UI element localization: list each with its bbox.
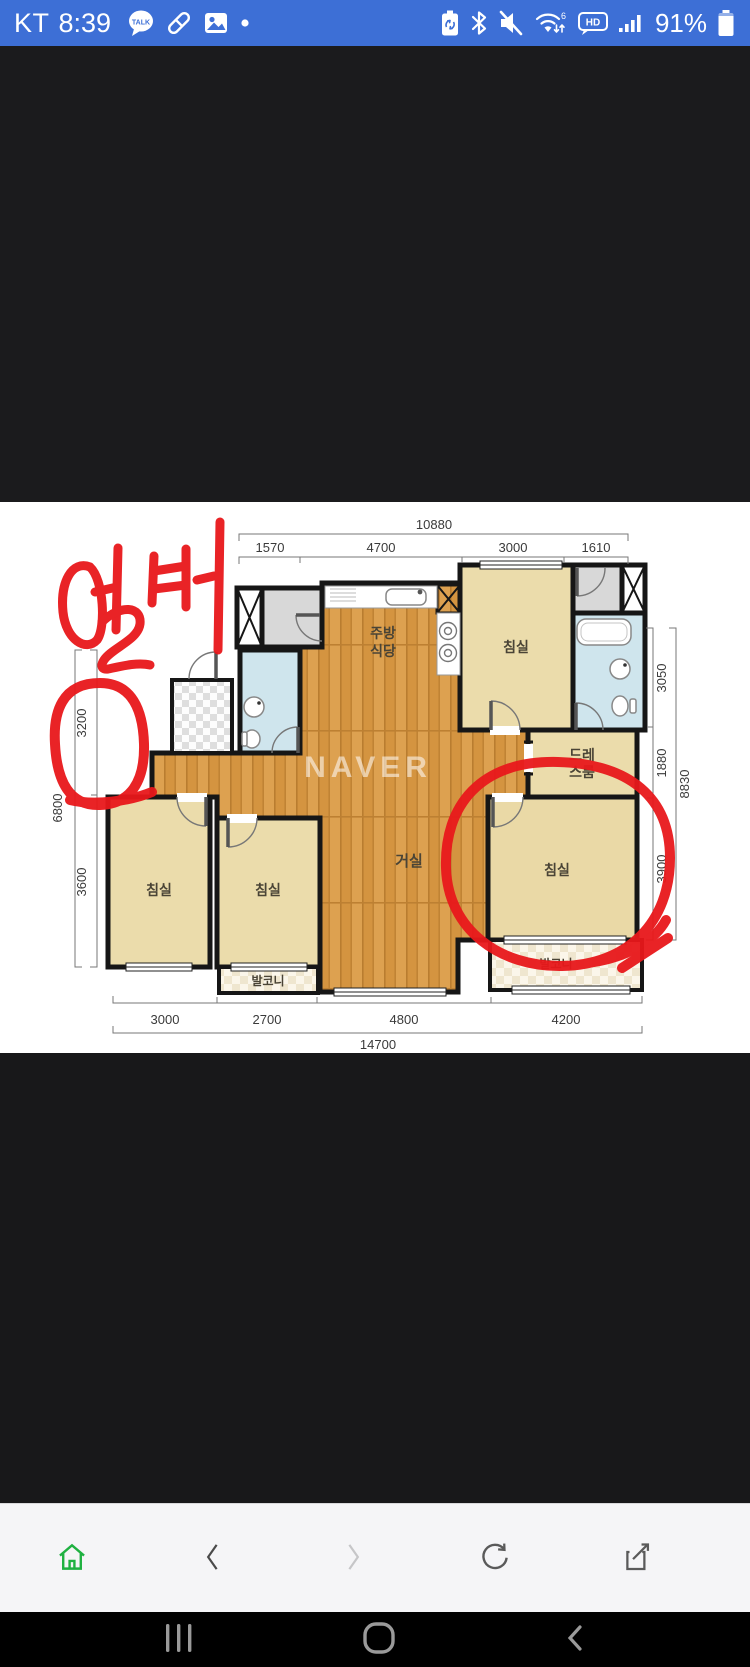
notification-dot-icon — [239, 17, 251, 29]
refresh-icon — [478, 1540, 512, 1577]
svg-text:4200: 4200 — [552, 1012, 581, 1027]
recents-button[interactable] — [158, 1618, 200, 1661]
status-bar: KT 8:39 TALK — [0, 0, 750, 46]
back-icon — [198, 1540, 228, 1577]
label-balcony-left: 발코니 — [251, 973, 284, 988]
label-bedroom-right: 침실 — [544, 862, 570, 878]
naver-watermark: NAVER — [304, 751, 432, 784]
dim-left-total: 6800 — [50, 794, 65, 823]
recents-icon — [162, 1622, 196, 1657]
svg-text:1570: 1570 — [256, 540, 285, 555]
label-bedroom-left2: 침실 — [255, 882, 281, 898]
status-left: KT 8:39 TALK — [14, 8, 251, 39]
svg-text:1610: 1610 — [582, 540, 611, 555]
kakaotalk-icon: TALK — [126, 9, 156, 37]
svg-text:TALK: TALK — [132, 20, 150, 27]
svg-text:1880: 1880 — [654, 749, 669, 778]
label-bedroom-left1: 침실 — [146, 882, 172, 898]
gallery-icon — [202, 9, 230, 37]
label-kitchen: 주방 — [370, 625, 396, 641]
toilet-right — [612, 696, 628, 716]
back-button-android[interactable] — [558, 1618, 592, 1661]
svg-text:3000: 3000 — [499, 540, 528, 555]
browser-toolbar — [0, 1503, 750, 1612]
hd-icon: HD — [577, 9, 609, 37]
svg-text:4800: 4800 — [390, 1012, 419, 1027]
battery-percent: 91% — [655, 8, 707, 39]
back-button[interactable] — [192, 1534, 234, 1583]
svg-text:3050: 3050 — [654, 664, 669, 693]
handwriting-elbe — [63, 522, 220, 669]
svg-text:HD: HD — [586, 18, 600, 29]
wifi-icon: 6 — [534, 9, 568, 37]
bluetooth-icon — [470, 9, 488, 37]
mute-icon — [497, 9, 525, 37]
label-bedroom-topright: 침실 — [503, 639, 529, 655]
svg-text:3600: 3600 — [74, 868, 89, 897]
closet-topright — [573, 565, 622, 613]
washbasin-right — [610, 659, 630, 679]
pen-icon — [165, 9, 193, 37]
floorplan-svg: 주방 식당 침실 드레 스룸 거실 침실 침실 침실 발코니 발코니 10880… — [0, 502, 750, 1053]
svg-text:3000: 3000 — [151, 1012, 180, 1027]
battery-saver-icon — [439, 9, 461, 37]
label-living: 거실 — [395, 853, 423, 870]
svg-text:식당: 식당 — [370, 643, 396, 659]
forward-button[interactable] — [332, 1534, 374, 1583]
dim-top-total: 10880 — [416, 517, 452, 532]
home-icon — [361, 1621, 397, 1658]
home-icon — [55, 1540, 89, 1577]
entrance — [172, 680, 232, 753]
floorplan-image[interactable]: 주방 식당 침실 드레 스룸 거실 침실 침실 침실 발코니 발코니 10880… — [0, 502, 750, 1053]
svg-text:6: 6 — [561, 11, 566, 21]
carrier-label: KT — [14, 8, 50, 39]
svg-text:3200: 3200 — [74, 709, 89, 738]
android-nav-bar — [0, 1612, 750, 1667]
clock: 8:39 — [59, 8, 112, 39]
signal-icon — [618, 9, 644, 37]
dim-right-total: 8830 — [677, 770, 692, 799]
status-right: 6 HD 91% — [439, 8, 736, 39]
back-icon — [562, 1622, 588, 1657]
forward-icon — [338, 1540, 368, 1577]
svg-text:2700: 2700 — [253, 1012, 282, 1027]
battery-icon — [716, 8, 736, 38]
utility-room-left — [262, 588, 322, 647]
home-button-android[interactable] — [357, 1617, 401, 1662]
share-icon — [621, 1540, 655, 1577]
letterbox-top — [0, 46, 750, 502]
svg-text:4700: 4700 — [367, 540, 396, 555]
home-button[interactable] — [49, 1534, 95, 1583]
share-button[interactable] — [615, 1534, 661, 1583]
letterbox-bottom — [0, 1053, 750, 1503]
refresh-button[interactable] — [472, 1534, 518, 1583]
washbasin-left — [244, 697, 264, 717]
red-circle-left — [55, 683, 152, 805]
dim-bottom-total: 14700 — [360, 1037, 396, 1052]
